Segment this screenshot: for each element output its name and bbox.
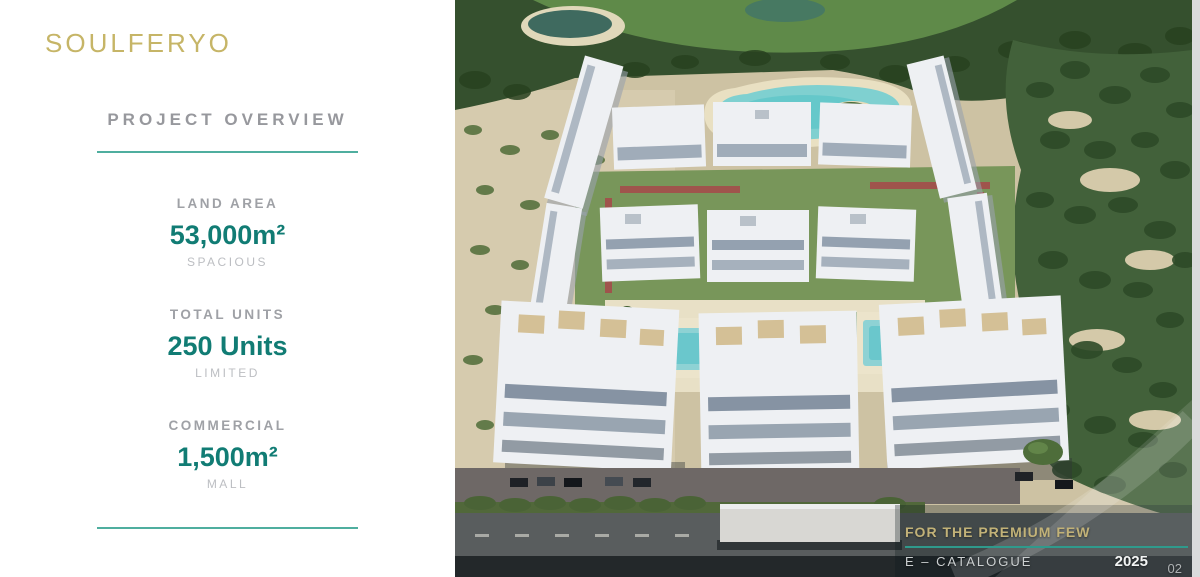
stat-label: TOTAL UNITS <box>0 307 455 322</box>
footer-divider-line <box>905 546 1188 548</box>
brand-logo: SOULFERYO <box>45 28 232 59</box>
stat-label: LAND AREA <box>0 196 455 211</box>
right-edge-strip <box>1192 0 1200 577</box>
entrance-canopy <box>720 504 900 542</box>
stat-value: 1,500m² <box>0 442 455 473</box>
stat-land-area: LAND AREA 53,000m² SPACIOUS <box>0 196 455 269</box>
stat-value: 250 Units <box>0 331 455 362</box>
bottom-divider <box>97 527 358 529</box>
page-number: 02 <box>1168 561 1182 576</box>
title-underline <box>97 151 358 153</box>
slide: SOULFERYO PROJECT OVERVIEW LAND AREA 53,… <box>0 0 1200 577</box>
year-label: 2025 <box>1115 553 1148 570</box>
page-title: PROJECT OVERVIEW <box>0 110 455 130</box>
aerial-render-illustration <box>455 0 1192 577</box>
stat-total-units: TOTAL UNITS 250 Units LIMITED <box>0 307 455 380</box>
compound-aerial-photo <box>455 0 1192 577</box>
catalogue-label: E – CATALOGUE <box>905 554 1032 569</box>
stat-commercial: COMMERCIAL 1,500m² MALL <box>0 418 455 491</box>
stat-label: COMMERCIAL <box>0 418 455 433</box>
tagline: FOR THE PREMIUM FEW <box>905 524 1188 540</box>
footer-overlay: FOR THE PREMIUM FEW E – CATALOGUE 2025 0… <box>905 524 1188 570</box>
stat-subtext: SPACIOUS <box>0 255 455 269</box>
stat-value: 53,000m² <box>0 220 455 251</box>
footer-meta-row: E – CATALOGUE 2025 <box>905 553 1188 570</box>
stat-subtext: LIMITED <box>0 366 455 380</box>
stat-subtext: MALL <box>0 477 455 491</box>
overview-panel: SOULFERYO PROJECT OVERVIEW LAND AREA 53,… <box>0 0 455 577</box>
